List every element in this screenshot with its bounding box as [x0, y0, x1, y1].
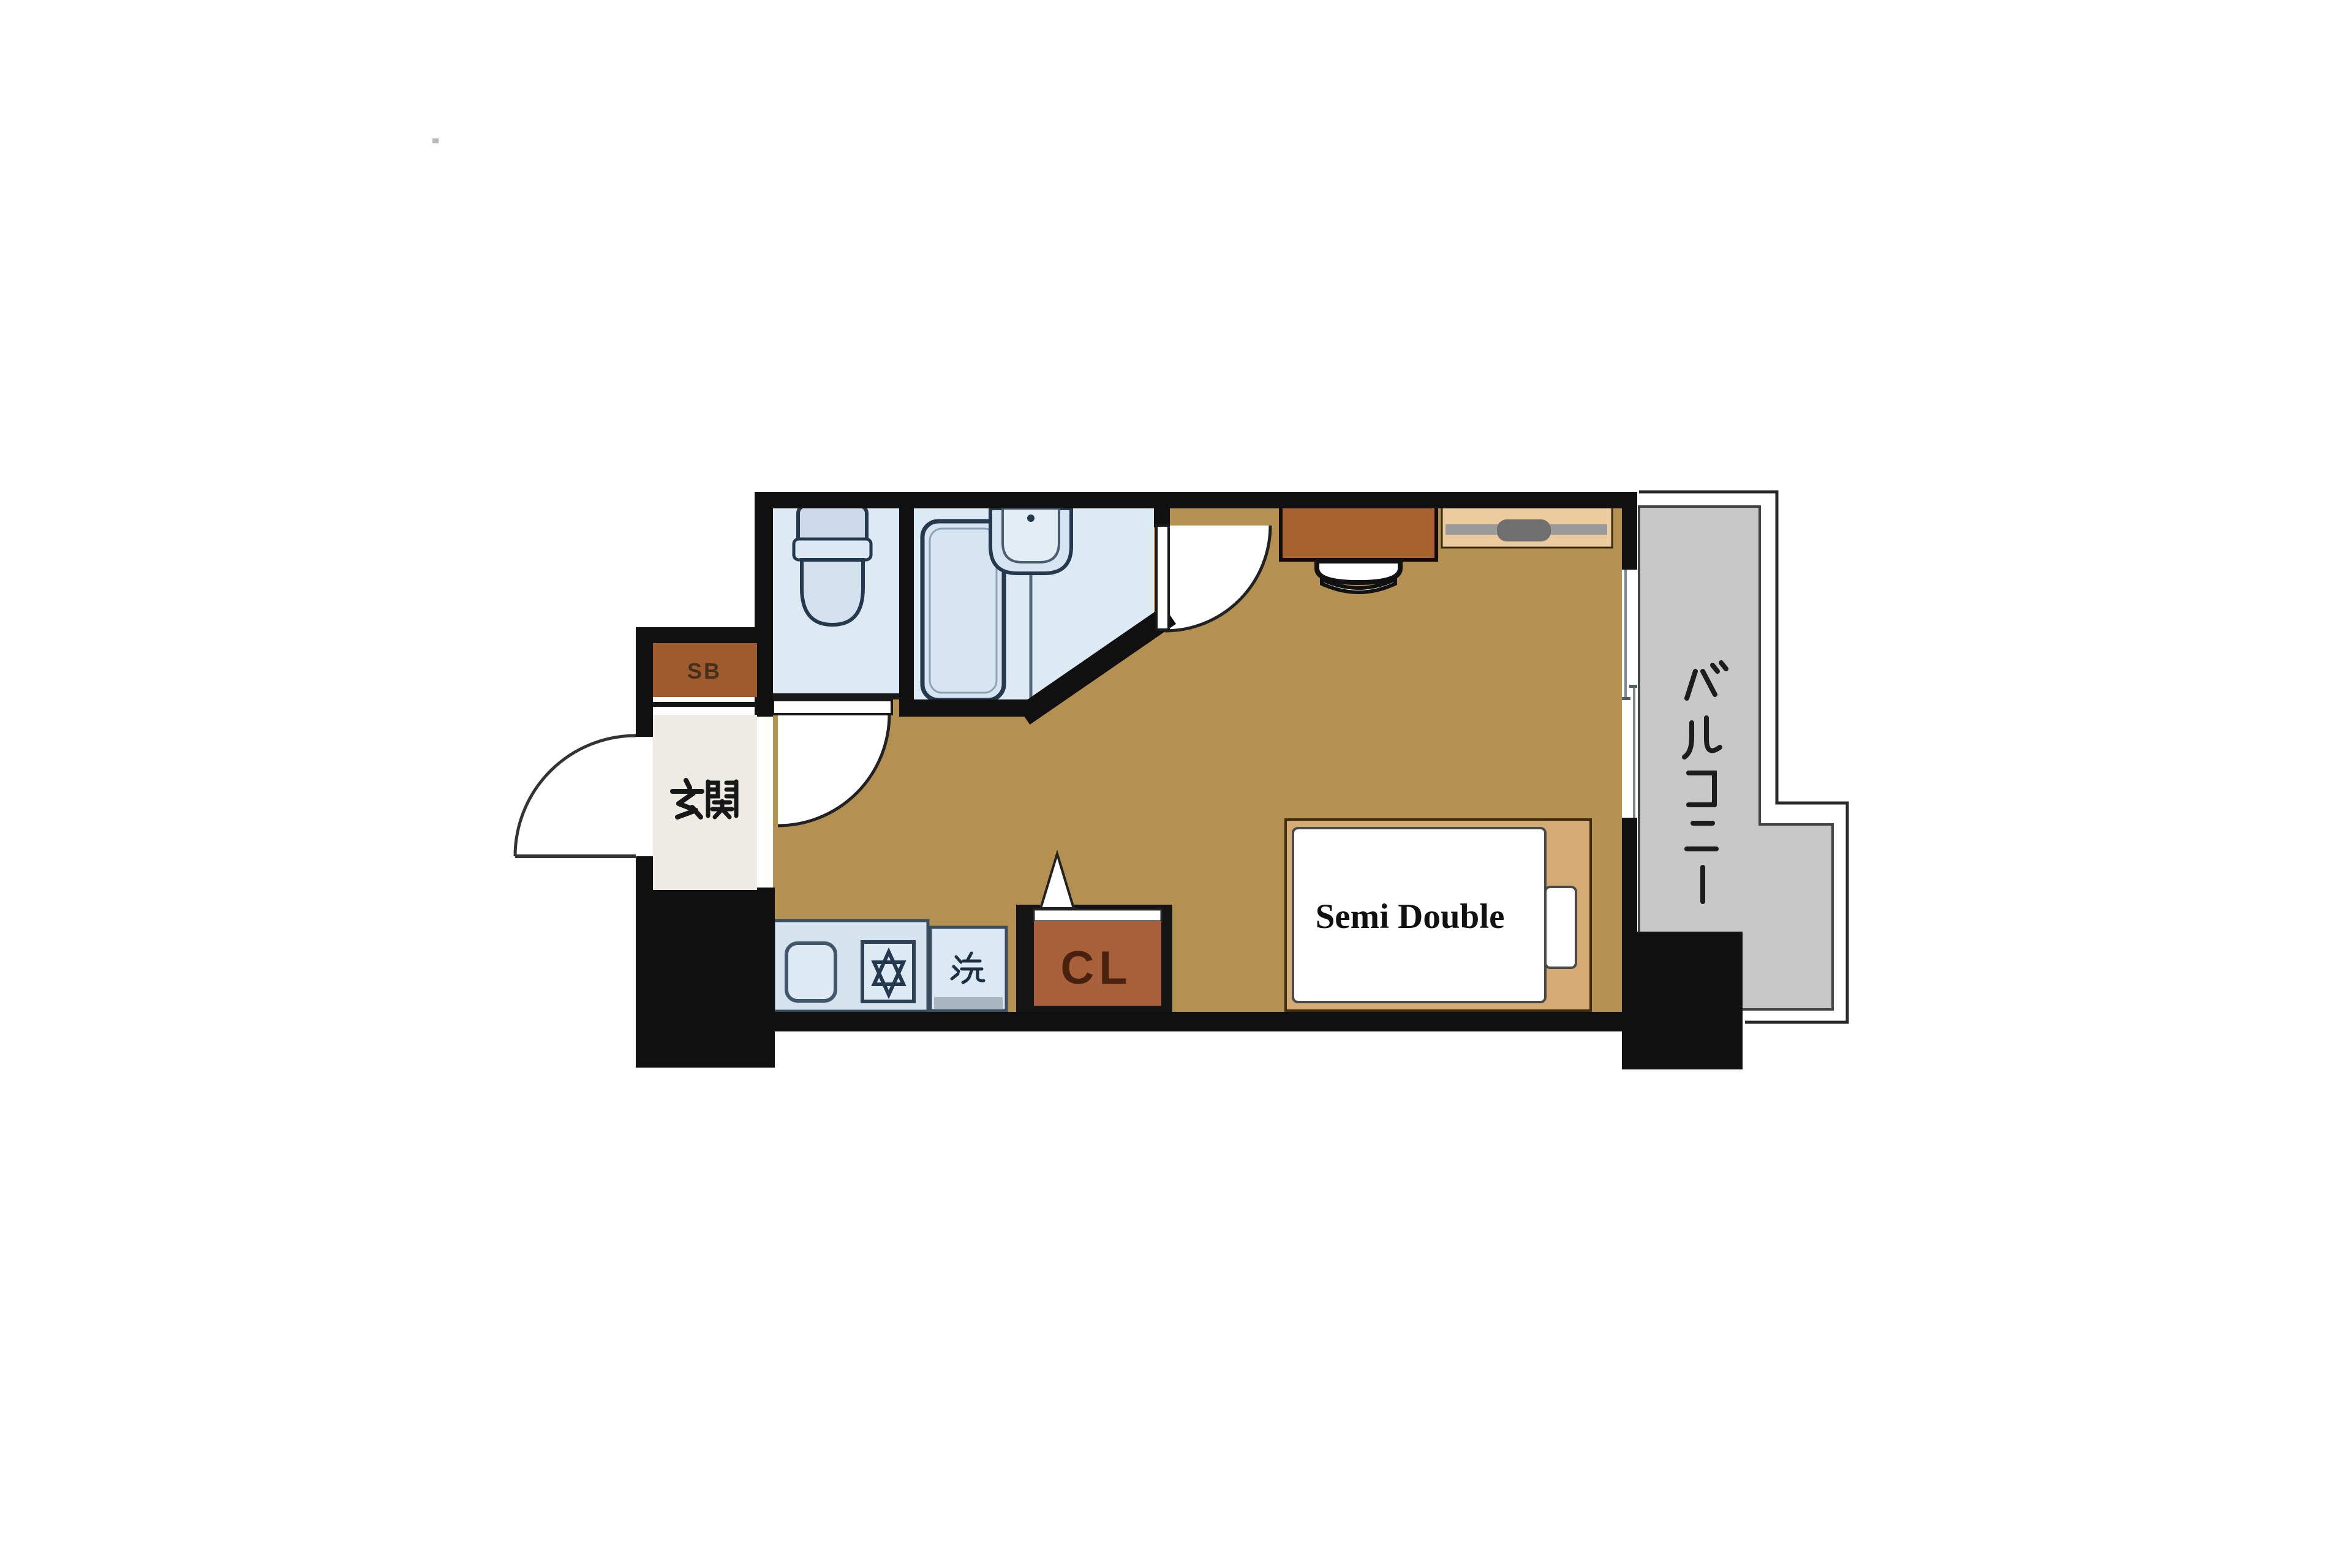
svg-text:Semi Double: Semi Double: [1316, 897, 1505, 936]
svg-text:CL: CL: [1060, 942, 1132, 994]
svg-text:SB: SB: [687, 658, 722, 684]
